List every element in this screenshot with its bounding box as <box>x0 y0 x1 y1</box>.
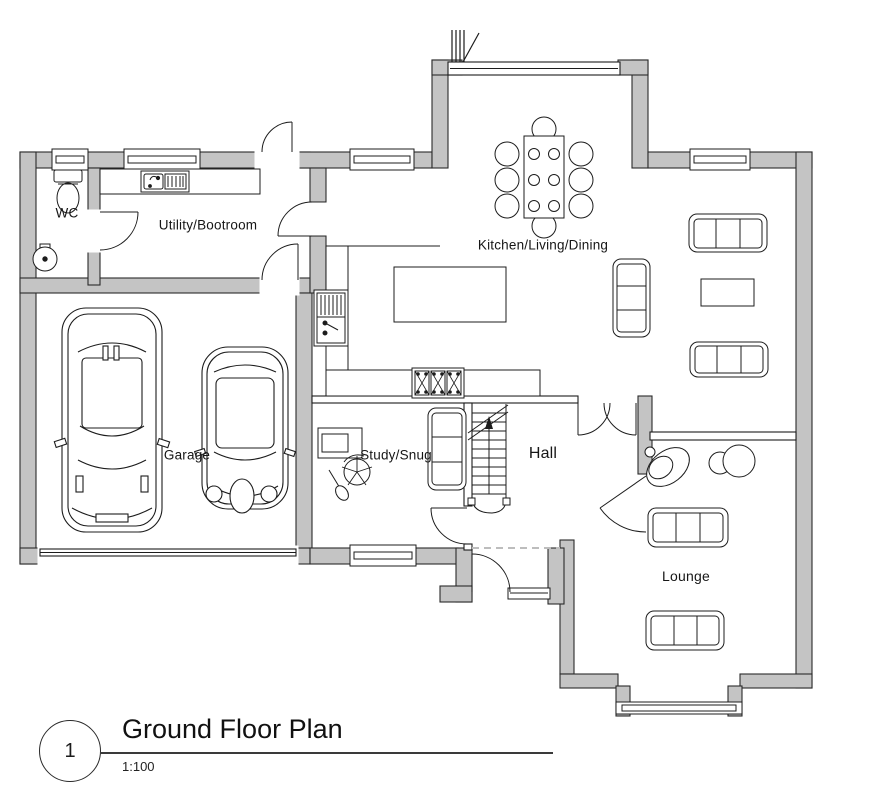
room-label-garage: Garage <box>164 448 210 463</box>
bifold-panels <box>452 30 479 62</box>
car-large <box>54 308 169 532</box>
dining-chair <box>569 168 593 192</box>
title-underline <box>100 752 553 754</box>
sofa <box>690 342 768 377</box>
staircase <box>468 404 510 513</box>
room-label-lounge: Lounge <box>662 568 710 584</box>
sofa <box>613 259 650 337</box>
dining-chair <box>495 194 519 218</box>
drawing-title: Ground Floor Plan <box>122 714 343 745</box>
back-door <box>262 122 292 152</box>
dining-chair <box>569 142 593 166</box>
utility-window <box>124 149 200 170</box>
floor-plan-drawing <box>0 0 896 800</box>
floor-plan-sheet: WC Utility/Bootroom Kitchen/Living/Dinin… <box>0 0 896 800</box>
side-tables <box>709 445 755 477</box>
porch-sidelight <box>508 588 550 599</box>
monitor <box>322 434 348 452</box>
room-label-study: Study/Snug <box>360 448 432 463</box>
sofa <box>648 508 728 547</box>
dining-set <box>495 117 593 238</box>
drawing-number: 1 <box>64 740 75 763</box>
dining-chair <box>569 194 593 218</box>
kitchen-fittings <box>314 246 540 398</box>
range-cooker <box>412 368 464 398</box>
garage-internal-door <box>262 244 298 280</box>
room-label-kitchen: Kitchen/Living/Dining <box>478 238 608 253</box>
room-label-utility: Utility/Bootroom <box>159 218 257 233</box>
front-door <box>472 554 510 592</box>
room-label-wc: WC <box>56 206 79 221</box>
room-label-hall: Hall <box>529 445 557 463</box>
stairs-up-arrow <box>485 416 493 494</box>
drawing-number-bubble: 1 <box>39 720 101 782</box>
utility-sink <box>141 171 189 192</box>
wash-basin <box>33 244 57 271</box>
title-block: 1 Ground Floor Plan 1:100 <box>0 712 896 796</box>
kitchen-door <box>278 202 312 236</box>
sofa <box>689 214 767 252</box>
kitchen-island <box>394 267 506 322</box>
study-door <box>431 508 467 544</box>
wc-window <box>52 149 88 170</box>
lounge-furniture <box>639 440 755 650</box>
tall-unit <box>314 290 348 346</box>
garage-vehicle-door <box>40 549 296 556</box>
coffee-table <box>701 279 754 306</box>
kitchen-hall-double-door <box>578 403 636 435</box>
living-area-furniture <box>613 214 768 377</box>
sofa <box>428 408 466 490</box>
study-window <box>350 545 416 566</box>
wc-door <box>100 212 138 250</box>
kitchen-right-window <box>690 149 750 170</box>
car-small <box>195 347 296 513</box>
bifold-patio-door <box>448 62 620 75</box>
hall-lounge-door <box>600 476 646 532</box>
dining-chair <box>495 142 519 166</box>
drawing-scale: 1:100 <box>122 759 155 774</box>
kitchen-left-window <box>350 149 414 170</box>
dining-chair <box>495 168 519 192</box>
sofa <box>646 611 724 650</box>
